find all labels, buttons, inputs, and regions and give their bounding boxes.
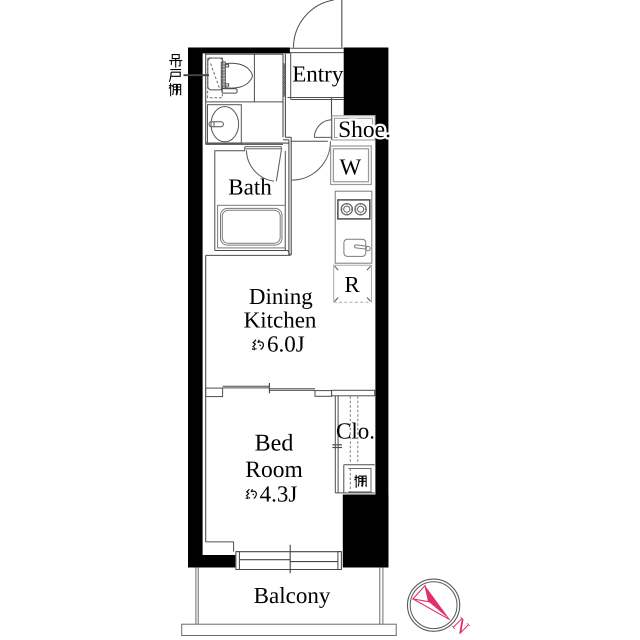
svg-text:Shoe.: Shoe.	[338, 117, 391, 143]
svg-text:W: W	[340, 155, 362, 180]
svg-text:Bed: Bed	[255, 431, 294, 457]
svg-text:Room: Room	[245, 457, 302, 483]
svg-text:R: R	[344, 272, 360, 297]
svg-text:4.3J: 4.3J	[260, 481, 298, 506]
svg-text:Dining: Dining	[249, 284, 313, 309]
svg-text:Balcony: Balcony	[254, 583, 331, 608]
svg-text:Kitchen: Kitchen	[244, 308, 317, 333]
svg-text:Entry: Entry	[292, 61, 344, 86]
svg-text:6.0J: 6.0J	[267, 332, 305, 357]
svg-text:Bath: Bath	[228, 175, 272, 200]
svg-text:Clo.: Clo.	[336, 419, 375, 444]
